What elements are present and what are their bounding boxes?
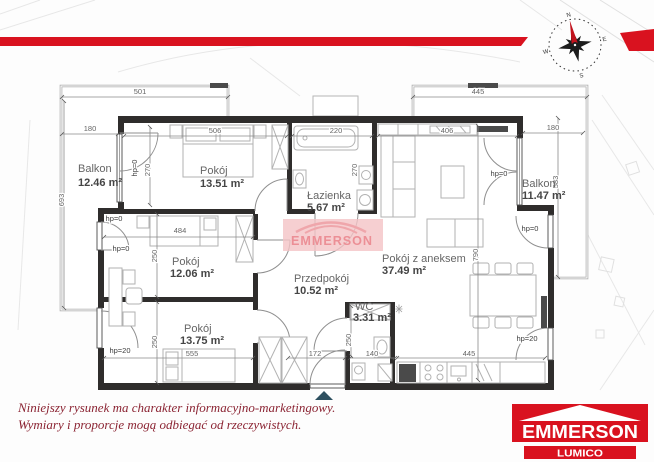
room-pokoj-aneks-name: Pokój z aneksem <box>382 253 466 265</box>
compass-w-label: W <box>543 49 550 56</box>
dim-270-left: 270 <box>143 164 152 177</box>
dim-501: 501 <box>134 87 147 96</box>
red-bar-right <box>620 29 654 51</box>
emmerson-lumico-logo: EMMERSON LUMICO <box>512 404 648 460</box>
bed-double-bedroom3 <box>163 349 235 382</box>
logo-secondary-text: LUMICO <box>557 449 603 460</box>
sofa <box>381 136 415 217</box>
dim-220: 220 <box>330 126 343 135</box>
washing-machine <box>357 190 373 210</box>
room-pokoj2-area: 12.06 m² <box>170 268 214 280</box>
dim-445-bottom: 445 <box>463 349 476 358</box>
dim-406: 406 <box>441 126 454 135</box>
room-balkon-right-name: Balkon <box>522 178 556 190</box>
disclaimer-line1: Niniejszy rysunek ma charakter informacy… <box>17 400 335 415</box>
dim-250-wc: 250 <box>344 334 353 347</box>
dim-790: 790 <box>471 249 480 262</box>
dim-693: 693 <box>57 194 66 207</box>
room-pokoj1-area: 13.51 m² <box>200 178 244 190</box>
watermark-text: EMMERSON <box>291 233 373 248</box>
room-przedpokoj-name: Przedpokój <box>294 273 349 285</box>
kitchen-counter-bottom <box>397 362 545 383</box>
hp0-label-left-step: hp=0 <box>106 214 123 223</box>
dim-250-a: 250 <box>150 250 159 263</box>
dim-250-b: 250 <box>150 336 159 349</box>
floorplan-canvas: N E S W <box>0 0 654 462</box>
compass-e-label: E <box>602 37 607 44</box>
wardrobe-bedroom1 <box>272 125 288 169</box>
room-pokoj3-name: Pokój <box>184 323 212 335</box>
bathroom-toilet <box>359 166 373 184</box>
wc-shower <box>378 364 392 381</box>
room-balkon-left-area: 12.46 m² <box>78 177 122 189</box>
emmerson-watermark: EMMERSON <box>283 219 383 251</box>
compass-n-label: N <box>566 12 571 19</box>
room-pokoj2-name: Pokój <box>172 256 200 268</box>
radiator <box>541 296 547 328</box>
bathtub <box>294 126 358 150</box>
coffee-table <box>441 166 464 198</box>
hp20-label-left: hp=20 <box>109 346 130 355</box>
bathroom-sink <box>293 170 306 188</box>
dim-172: 172 <box>309 349 322 358</box>
room-balkon-right-area: 11.47 m² <box>522 190 566 202</box>
dining-table-with-chairs <box>470 263 536 328</box>
room-wc-area: 3.31 m² <box>353 312 391 324</box>
logo-primary-text: EMMERSON <box>522 421 638 442</box>
dim-506: 506 <box>209 126 222 135</box>
kitchen-island <box>427 219 483 247</box>
compass-s-label: S <box>579 73 584 80</box>
header-band <box>0 29 654 51</box>
hp0-label-right-balcony: hp=0 <box>491 169 508 178</box>
dim-180-left: 180 <box>84 124 97 133</box>
room-pokoj1-name: Pokój <box>200 165 228 177</box>
room-lazienka-name: Łazienka <box>307 190 352 202</box>
hall-wardrobes <box>259 337 307 383</box>
wc-toilet <box>352 363 365 380</box>
room-balkon-left-name: Balkon <box>78 163 112 175</box>
dim-445-top: 445 <box>472 87 485 96</box>
hp0-label-right-step: hp=0 <box>522 224 539 233</box>
dim-180-right: 180 <box>547 123 560 132</box>
hp20-label-right: hp=20 <box>516 334 537 343</box>
dim-270-bath: 270 <box>350 164 359 177</box>
room-przedpokoj-area: 10.52 m² <box>294 285 338 297</box>
hp0-label-bedroom1: hp=0 <box>130 160 139 177</box>
hp0-label-left-window: hp=0 <box>113 244 130 253</box>
dim-140: 140 <box>366 349 379 358</box>
wardrobe-bedroom2 <box>236 216 253 262</box>
dim-555: 555 <box>186 349 199 358</box>
compass-rose-icon: N E S W <box>536 6 614 86</box>
red-bar <box>0 37 528 46</box>
room-lazienka-area: 5.67 m² <box>307 202 345 214</box>
room-pokoj3-area: 13.75 m² <box>180 335 224 347</box>
room-pokoj-aneks-area: 37.49 m² <box>382 265 426 277</box>
footer-disclaimer: Niniejszy rysunek ma charakter informacy… <box>17 400 335 432</box>
floorplan-page: N E S W <box>0 0 654 462</box>
disclaimer-line2: Wymiary i proporcje mogą odbiegać od rze… <box>18 417 301 432</box>
dim-484: 484 <box>174 226 187 235</box>
entrance-arrow-icon <box>315 391 333 400</box>
